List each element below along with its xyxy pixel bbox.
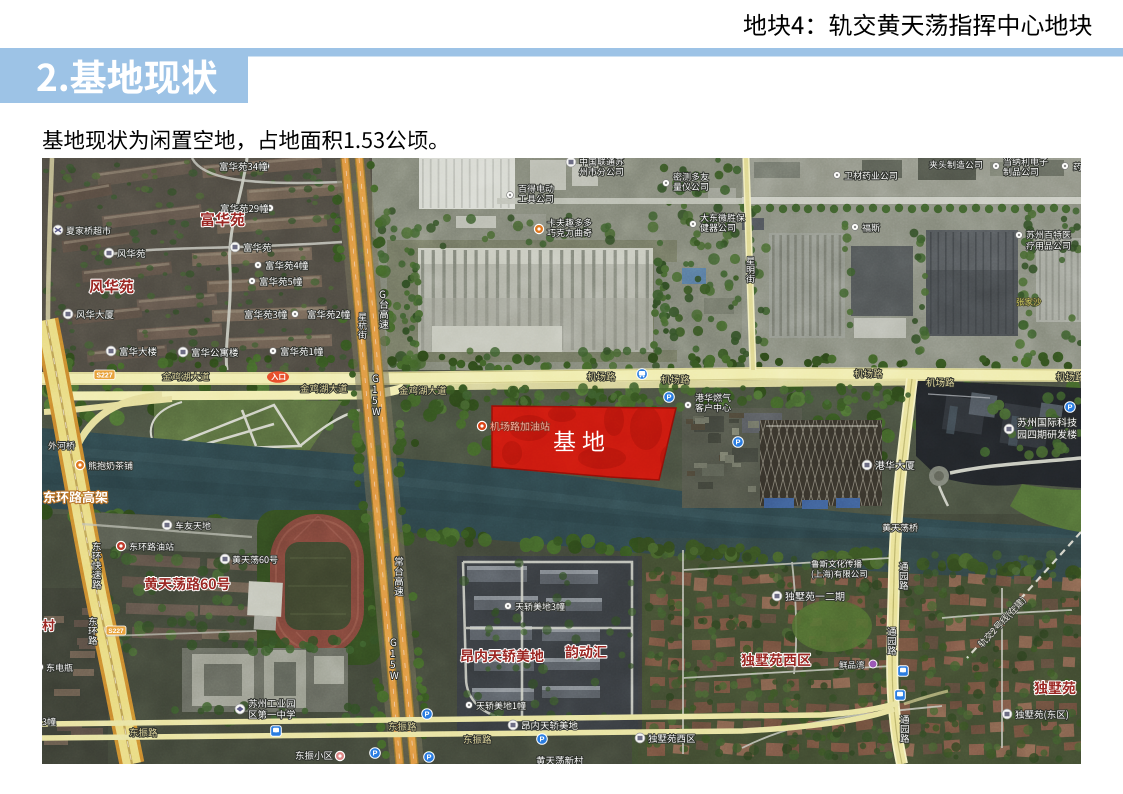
svg-text:P: P bbox=[735, 438, 740, 447]
svg-text:P: P bbox=[1067, 403, 1072, 412]
svg-text:P: P bbox=[424, 710, 429, 719]
svg-text:P: P bbox=[666, 393, 671, 402]
svg-text:S227: S227 bbox=[108, 628, 124, 635]
svg-text:P: P bbox=[539, 735, 544, 744]
svg-text:P: P bbox=[426, 753, 431, 762]
svg-text:P: P bbox=[372, 749, 377, 758]
svg-text:S227: S227 bbox=[96, 373, 112, 380]
